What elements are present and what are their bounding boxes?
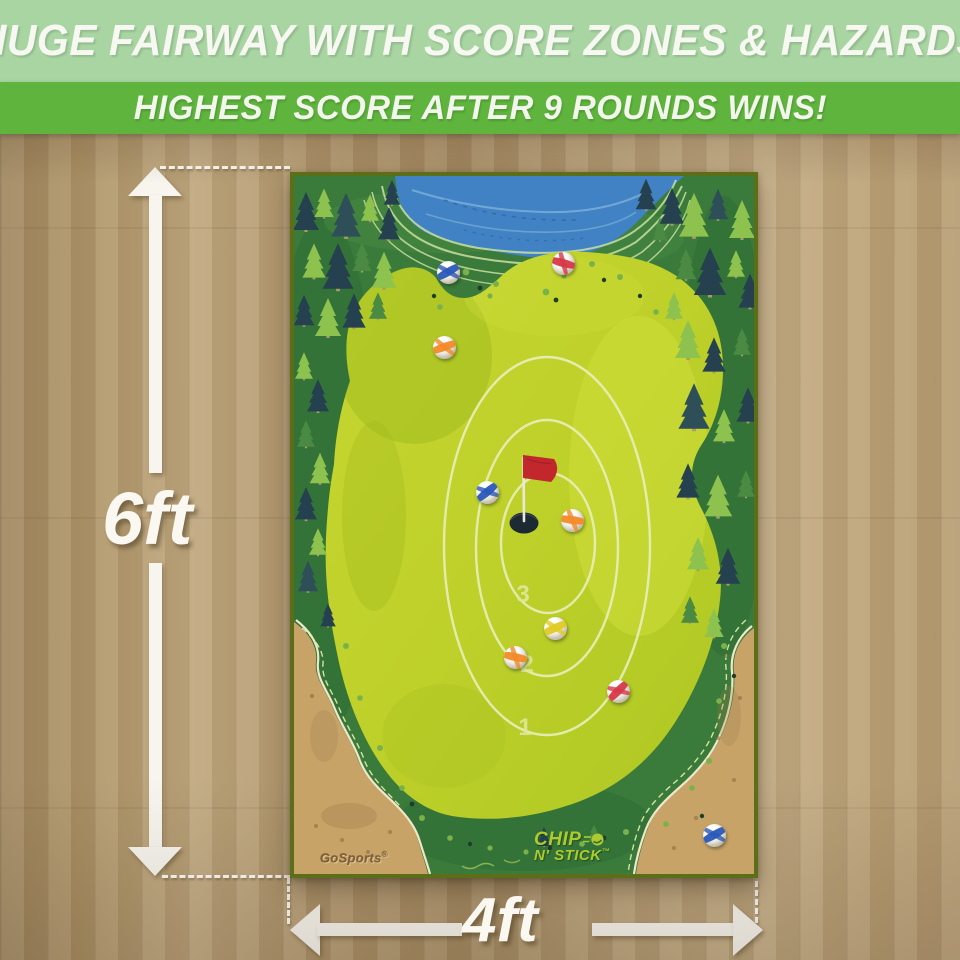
height-label: 6ft — [102, 482, 192, 556]
score-zone-label-1: 1 — [518, 714, 531, 742]
golf-ball-orange — [504, 646, 527, 669]
height-arrow-down-icon — [128, 847, 182, 876]
registered-mark: ® — [382, 850, 388, 859]
subheadline-banner: HIGHEST SCORE AFTER 9 ROUNDS WINS! — [0, 82, 960, 134]
width-arrow-left-icon — [290, 904, 320, 956]
height-arrow-up-icon — [128, 167, 182, 196]
golf-mat: 321 GoSports® CHIP N' STICK™ — [290, 172, 758, 878]
width-arrow-shaft-left — [317, 923, 462, 936]
headline-text: HUGE FAIRWAY WITH SCORE ZONES & HAZARDS — [0, 16, 960, 66]
golf-ball-orange — [433, 336, 456, 359]
product-image: HUGE FAIRWAY WITH SCORE ZONES & HAZARDS … — [0, 0, 960, 960]
golf-ball-blue — [703, 824, 726, 847]
golf-ball-blue — [476, 481, 499, 504]
height-arrow-shaft-bottom — [149, 563, 162, 847]
height-arrow-shaft-top — [149, 195, 162, 473]
golf-ball-blue — [437, 261, 460, 284]
score-zone-label-3: 3 — [516, 581, 529, 609]
wood-floor: 321 GoSports® CHIP N' STICK™ — [0, 134, 960, 960]
gosports-logo: GoSports® — [320, 850, 388, 865]
width-arrow-shaft-right — [592, 923, 736, 936]
chip-logo-line1: CHIP — [534, 831, 581, 848]
width-label: 4ft — [462, 890, 538, 952]
golf-ball-red — [607, 680, 630, 703]
headline-banner: HUGE FAIRWAY WITH SCORE ZONES & HAZARDS — [0, 0, 960, 82]
golf-ball-swoosh-icon — [583, 832, 605, 848]
gosports-logo-text: GoSports — [320, 850, 382, 865]
subheadline-text: HIGHEST SCORE AFTER 9 ROUNDS WINS! — [133, 89, 826, 128]
golf-ball-orange — [561, 509, 584, 532]
mat-artwork — [294, 176, 754, 874]
golf-ball-red — [552, 252, 575, 275]
chip-logo-line2: N' STICK — [534, 847, 602, 864]
trademark-mark: ™ — [602, 847, 611, 856]
chip-n-stick-logo: CHIP N' STICK™ — [534, 831, 610, 863]
width-arrow-right-icon — [733, 904, 763, 956]
golf-ball-yellow — [544, 617, 567, 640]
height-dashed-line-bottom — [162, 875, 290, 878]
